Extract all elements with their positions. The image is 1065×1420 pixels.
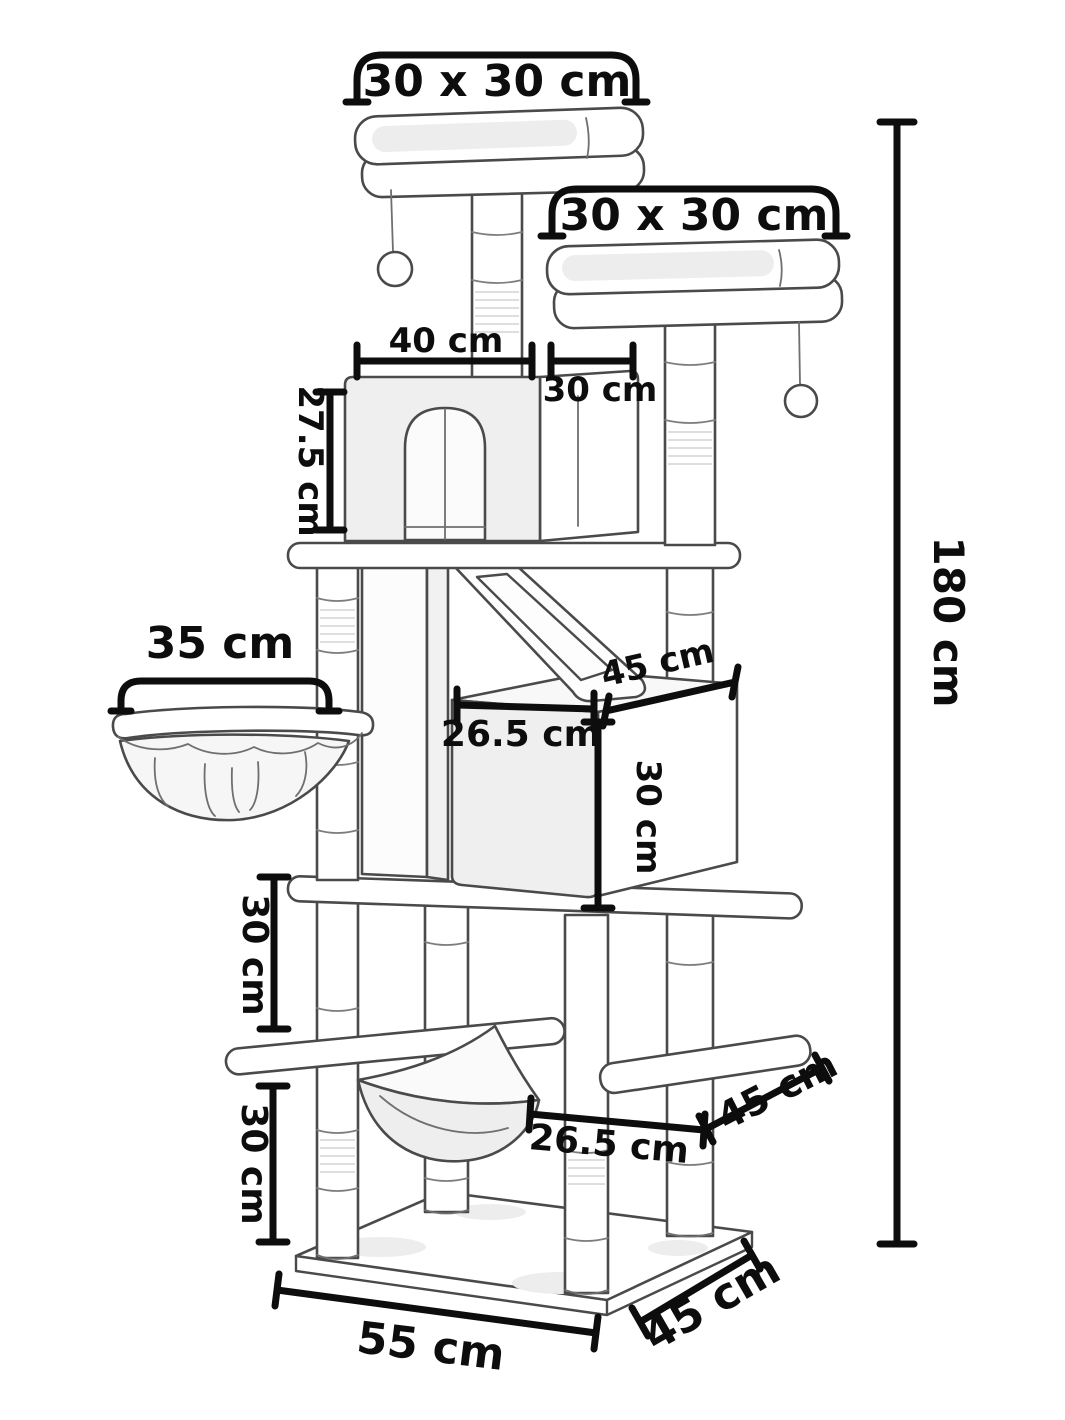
toy-ball-left xyxy=(378,190,412,286)
dim-lower-level-gap-label: 30 cm xyxy=(233,1103,274,1224)
dim-house-depth-label: 30 cm xyxy=(543,370,658,410)
toy-ball-right xyxy=(785,322,817,417)
dim-upper-perch-size: 30 x 30 cm xyxy=(541,189,847,241)
scratching-post-lower-left xyxy=(317,898,358,1259)
dim-house-depth: 30 cm xyxy=(543,345,658,410)
scratching-post-lower-right-front xyxy=(565,915,608,1294)
dim-house-height: 27.5 cm xyxy=(290,385,344,536)
dim-house-width-label: 40 cm xyxy=(389,321,504,361)
diagram-canvas: 30 x 30 cm 30 x 30 cm 40 cm 30 cm 27.5 c… xyxy=(0,0,1065,1420)
dim-upper-level-gap: 30 cm xyxy=(234,877,288,1029)
dim-upper-perch-size-label: 30 x 30 cm xyxy=(560,190,829,241)
top-perch xyxy=(354,107,644,198)
dim-total-height-label: 180 cm xyxy=(924,537,973,708)
house-door-arch xyxy=(405,408,485,540)
scratching-post-upper-perch xyxy=(665,315,715,545)
upper-perch xyxy=(546,239,842,328)
platform-upper xyxy=(288,543,740,568)
dim-house-height-label: 27.5 cm xyxy=(290,385,330,536)
wall-board xyxy=(362,562,448,880)
dim-upper-level-gap-label: 30 cm xyxy=(234,894,275,1015)
dim-top-perch-size-label: 30 x 30 cm xyxy=(363,56,632,107)
dim-lower-level-gap: 30 cm xyxy=(233,1086,287,1242)
dim-top-perch-size: 30 x 30 cm xyxy=(346,55,647,107)
dim-condo-width-label: 26.5 cm xyxy=(441,714,601,755)
dim-basket-width: 35 cm xyxy=(111,618,339,711)
dim-basket-width-label: 35 cm xyxy=(146,618,294,669)
dim-total-height: 180 cm xyxy=(880,122,973,1244)
dim-base-width-label: 55 cm xyxy=(354,1312,508,1381)
cat-tree-dimension-diagram: 30 x 30 cm 30 x 30 cm 40 cm 30 cm 27.5 c… xyxy=(0,0,1065,1420)
dim-condo-height-label: 30 cm xyxy=(628,760,668,875)
